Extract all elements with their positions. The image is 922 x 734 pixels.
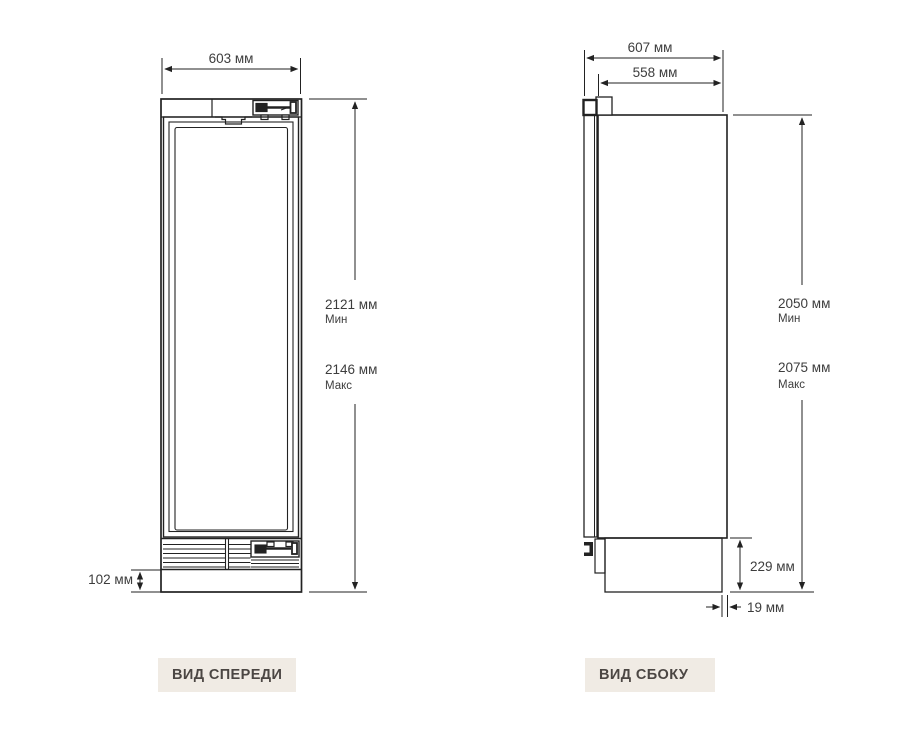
side-height-max-qualifier: Макс xyxy=(778,379,805,391)
side-door xyxy=(584,115,597,537)
front-door-panel xyxy=(175,128,288,531)
side-height-min-qualifier: Мин xyxy=(778,313,800,325)
front-height-max-qualifier: Макс xyxy=(325,380,352,392)
front-plinth-height-label: 102 мм xyxy=(88,572,133,587)
side-front-leg xyxy=(595,539,605,573)
front-height-min-qualifier: Мин xyxy=(325,314,347,326)
dimension-drawing: 603 мм 2121 мм Мин 2146 мм Макс 102 мм xyxy=(0,0,922,734)
side-top-hinge xyxy=(584,97,613,115)
side-cabinet-outline xyxy=(598,115,727,538)
front-cabinet-outline xyxy=(161,99,302,592)
side-height-min-label: 2050 мм xyxy=(778,296,830,311)
side-view-dimension-labels: 607 мм 558 мм 2050 мм Мин 2075 мм Макс 2… xyxy=(628,40,831,615)
side-base-height-label: 229 мм xyxy=(750,559,795,574)
side-height-max-label: 2075 мм xyxy=(778,360,830,375)
front-height-min-label: 2121 мм xyxy=(325,297,377,312)
front-view-caption: ВИД СПЕРЕДИ xyxy=(158,658,296,692)
side-bottom-hinge xyxy=(584,542,593,556)
front-door-outline xyxy=(164,117,299,537)
side-plinth xyxy=(605,538,722,592)
side-depth-body-label: 558 мм xyxy=(633,65,678,80)
front-top-tab xyxy=(215,117,252,124)
front-view-dimension-labels: 603 мм 2121 мм Мин 2146 мм Макс 102 мм xyxy=(88,51,377,587)
side-depth-overall-label: 607 мм xyxy=(628,40,673,55)
side-view-dimensions xyxy=(585,50,815,617)
front-grille xyxy=(161,539,302,570)
front-bottom-hinge xyxy=(251,541,299,557)
side-view-caption: ВИД СБОКУ xyxy=(585,658,715,692)
front-view-drawing xyxy=(161,99,302,592)
front-width-label: 603 мм xyxy=(209,51,254,66)
side-base-recess-label: 19 мм xyxy=(747,600,784,615)
front-height-max-label: 2146 мм xyxy=(325,362,377,377)
side-view-drawing xyxy=(584,97,728,592)
appliance-dimensions-diagram: 603 мм 2121 мм Мин 2146 мм Макс 102 мм xyxy=(0,0,922,734)
